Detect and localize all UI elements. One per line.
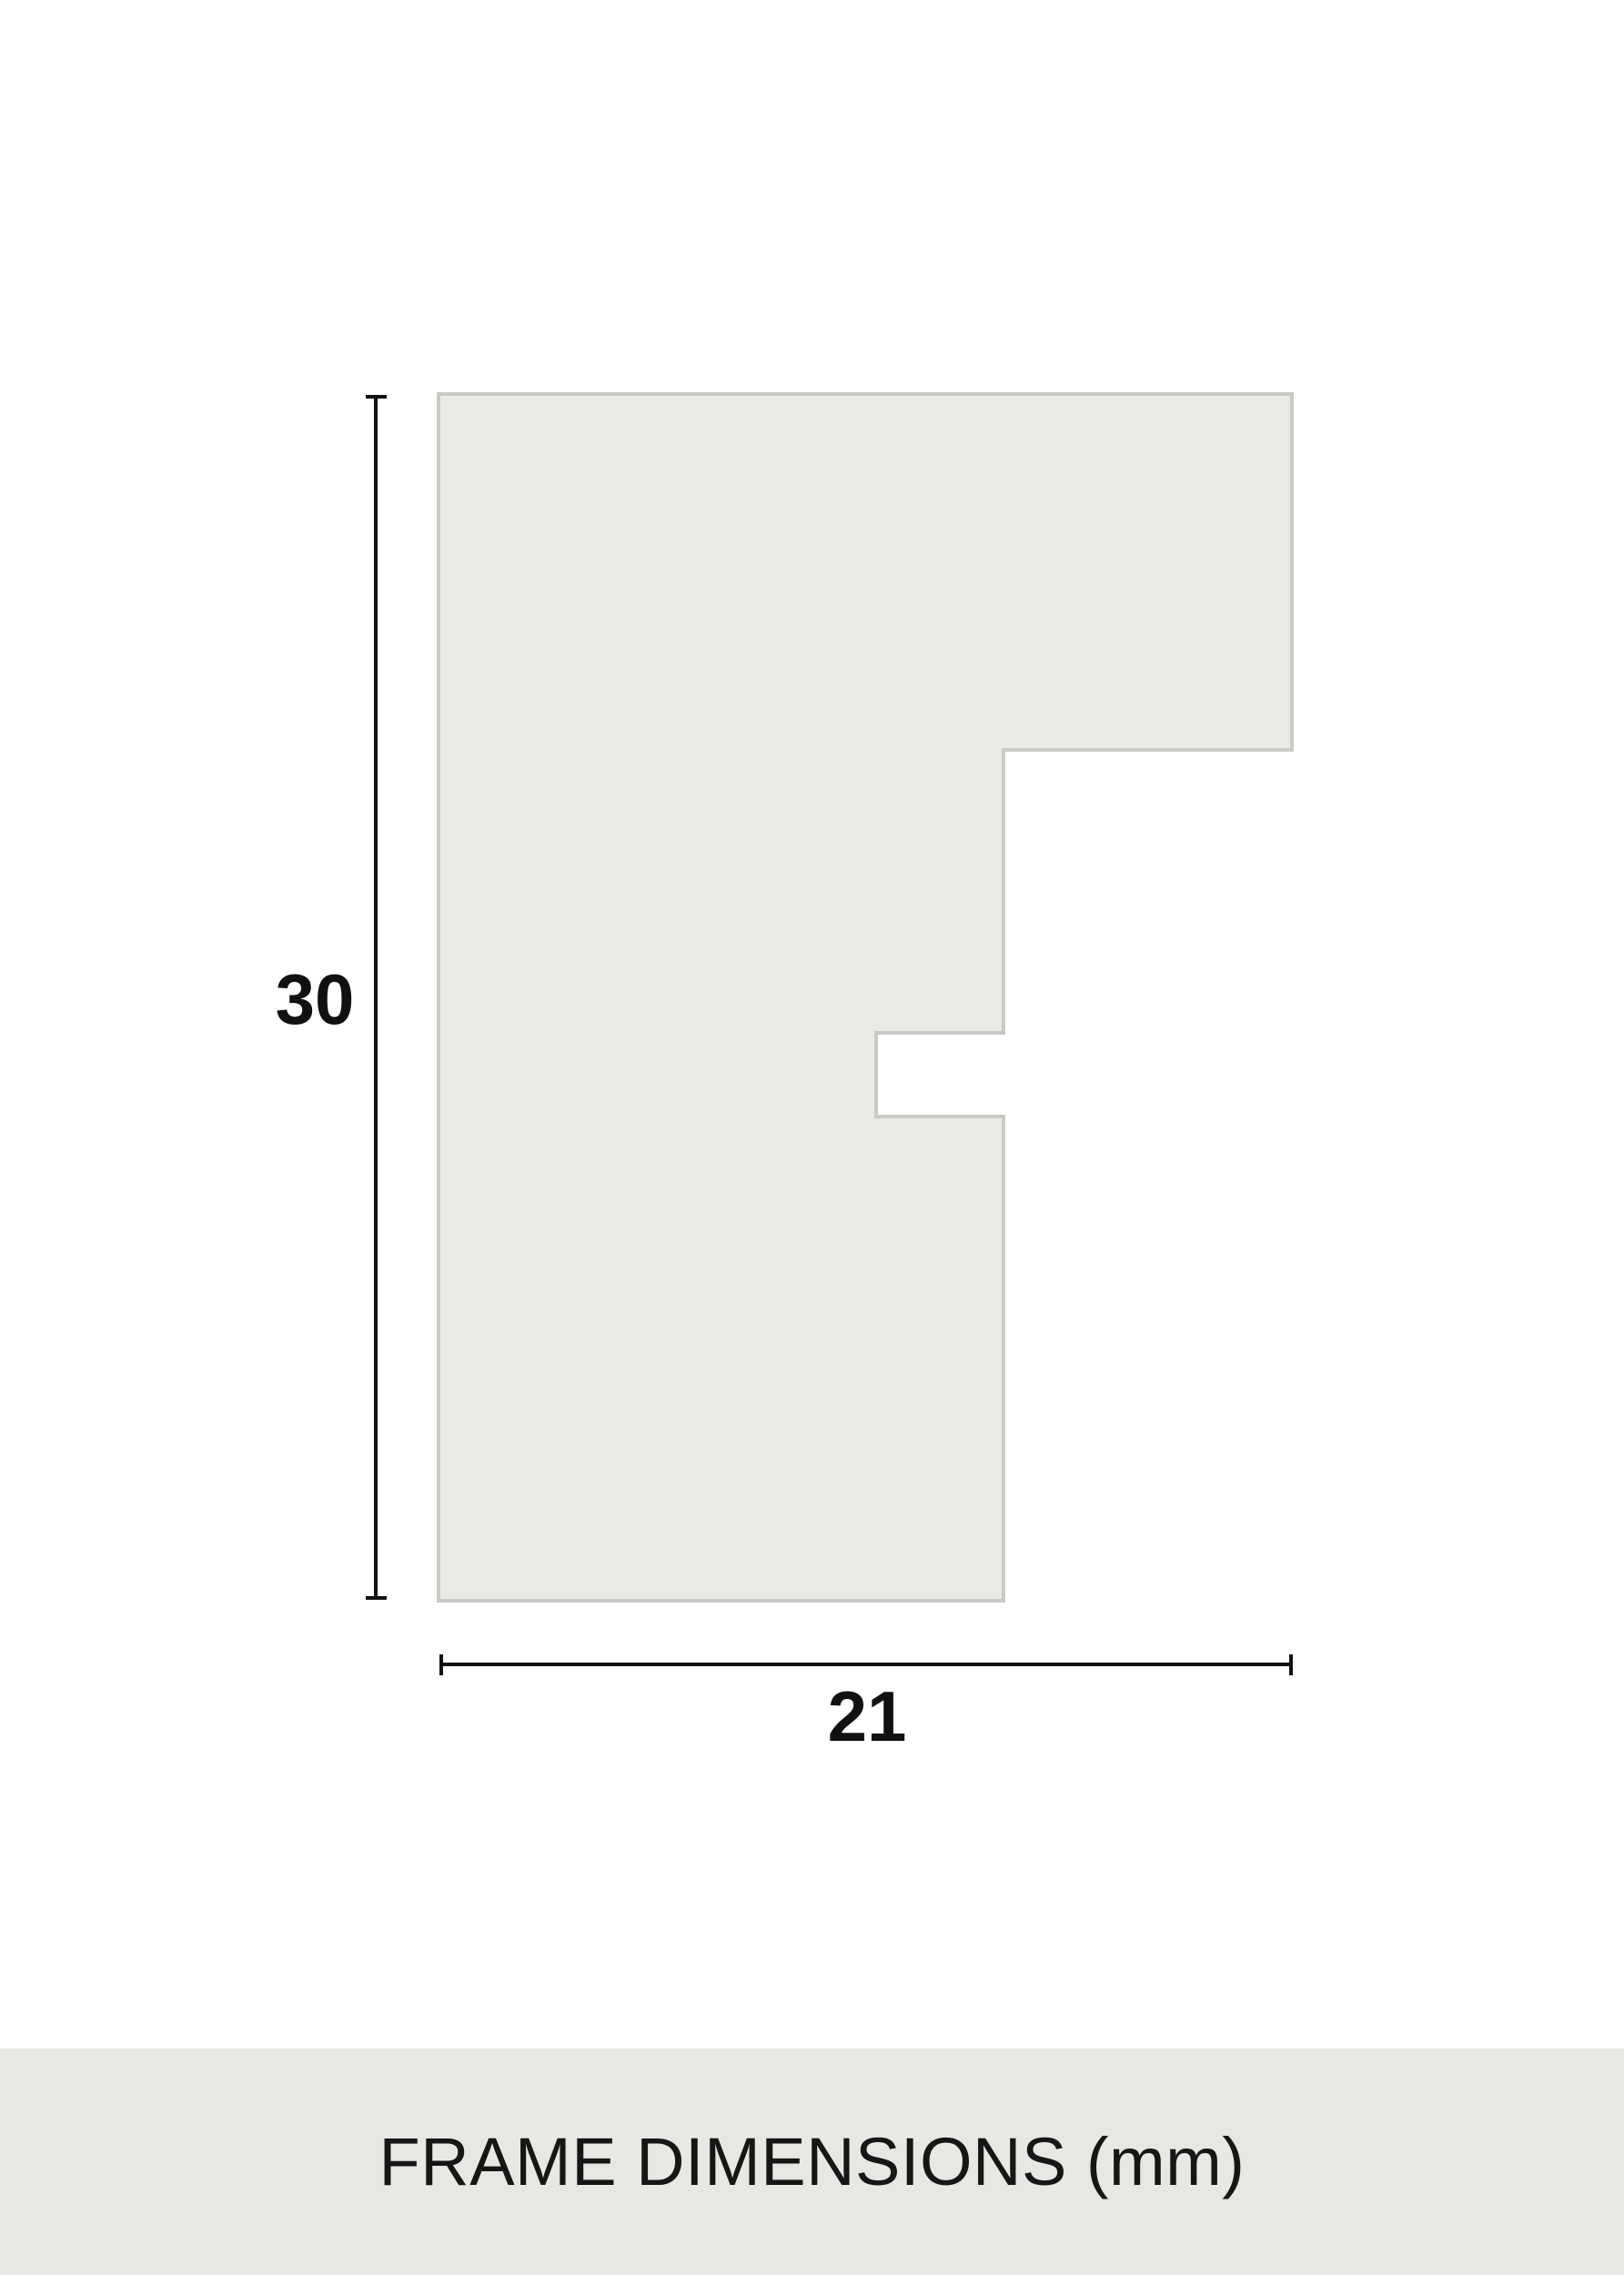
- caption-bar: FRAME DIMENSIONS (mm): [0, 2048, 1624, 2275]
- diagram-drawing: [0, 0, 1624, 2275]
- horizontal-dimension-line: [441, 1654, 1291, 1675]
- caption-text: FRAME DIMENSIONS (mm): [379, 2128, 1246, 2196]
- frame-profile-cross-section: [439, 394, 1292, 1601]
- frame-dimension-diagram: 30 21 FRAME DIMENSIONS (mm): [0, 0, 1624, 2275]
- vertical-dimension-line: [366, 397, 387, 1598]
- width-dimension-label: 21: [828, 1681, 907, 1752]
- height-dimension-label: 30: [276, 964, 355, 1035]
